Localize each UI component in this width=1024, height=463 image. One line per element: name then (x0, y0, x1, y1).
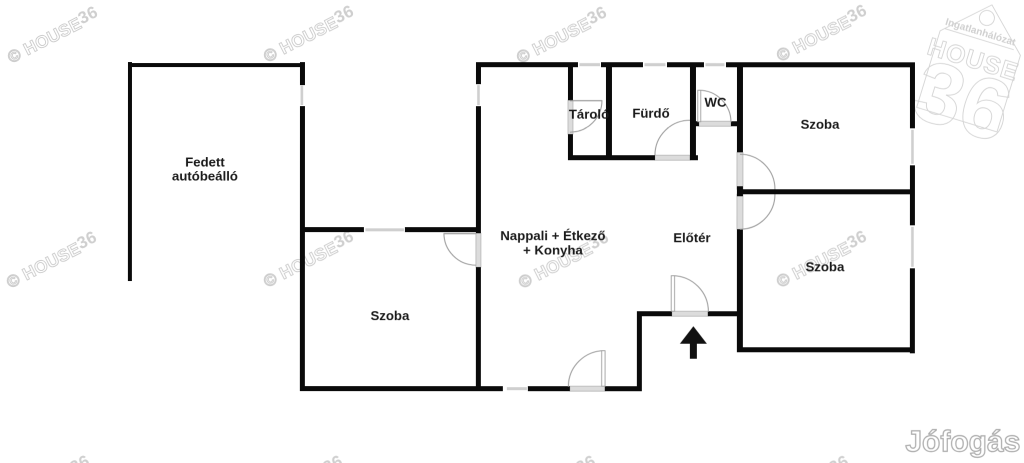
svg-text:Szoba: Szoba (801, 117, 841, 132)
svg-text:Jófogás: Jófogás (905, 425, 1020, 458)
svg-text:Fedett: Fedett (185, 155, 225, 170)
svg-text:Fürdő: Fürdő (632, 106, 669, 121)
svg-text:WC: WC (704, 95, 726, 110)
svg-text:autóbeálló: autóbeálló (172, 169, 238, 184)
svg-text:Szoba: Szoba (805, 259, 845, 274)
svg-text:Nappali + Étkező: Nappali + Étkező (500, 228, 605, 243)
svg-text:+ Konyha: + Konyha (523, 243, 583, 258)
svg-text:Tároló: Tároló (569, 106, 609, 121)
svg-text:Szoba: Szoba (370, 308, 410, 323)
svg-text:Előtér: Előtér (673, 230, 710, 245)
